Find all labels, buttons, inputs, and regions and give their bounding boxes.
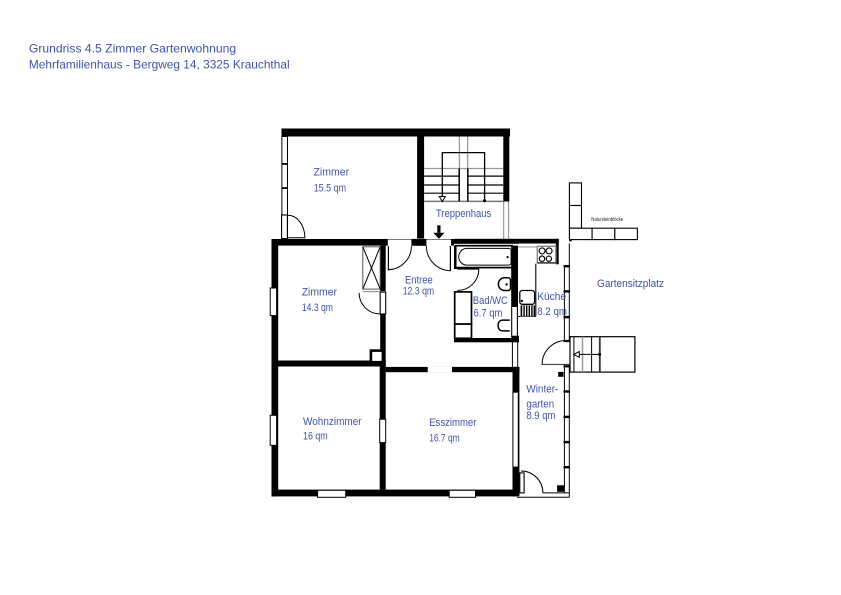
svg-text:8.9 qm: 8.9 qm xyxy=(526,410,555,422)
svg-text:Winter-: Winter- xyxy=(526,383,558,395)
svg-text:15.5 qm: 15.5 qm xyxy=(314,182,346,194)
svg-text:Esszimmer: Esszimmer xyxy=(429,417,477,429)
svg-text:Zimmer: Zimmer xyxy=(302,286,338,298)
svg-text:Zimmer: Zimmer xyxy=(314,167,350,179)
svg-text:16.7 qm: 16.7 qm xyxy=(429,432,460,444)
svg-text:Mehrfamilienhaus - Bergweg 14,: Mehrfamilienhaus - Bergweg 14, 3325 Krau… xyxy=(29,59,290,72)
svg-text:Grundriss 4.5 Zimmer Gartenwoh: Grundriss 4.5 Zimmer Gartenwohnung xyxy=(29,43,236,56)
svg-text:8.2 qm: 8.2 qm xyxy=(537,306,567,318)
svg-text:Treppenhaus: Treppenhaus xyxy=(436,208,491,220)
svg-text:12.3 qm: 12.3 qm xyxy=(403,285,435,297)
svg-text:14.3 qm: 14.3 qm xyxy=(302,302,333,314)
svg-text:Natursteinblöcke: Natursteinblöcke xyxy=(591,217,623,223)
svg-text:6.7 qm: 6.7 qm xyxy=(474,307,503,319)
svg-text:garten: garten xyxy=(526,398,554,410)
svg-text:Gartensitzplatz: Gartensitzplatz xyxy=(597,278,664,290)
svg-text:Küche: Küche xyxy=(537,291,566,303)
svg-text:Wohnzimmer: Wohnzimmer xyxy=(303,416,362,428)
svg-text:Bad/WC: Bad/WC xyxy=(473,295,508,307)
svg-text:16 qm: 16 qm xyxy=(303,431,328,443)
